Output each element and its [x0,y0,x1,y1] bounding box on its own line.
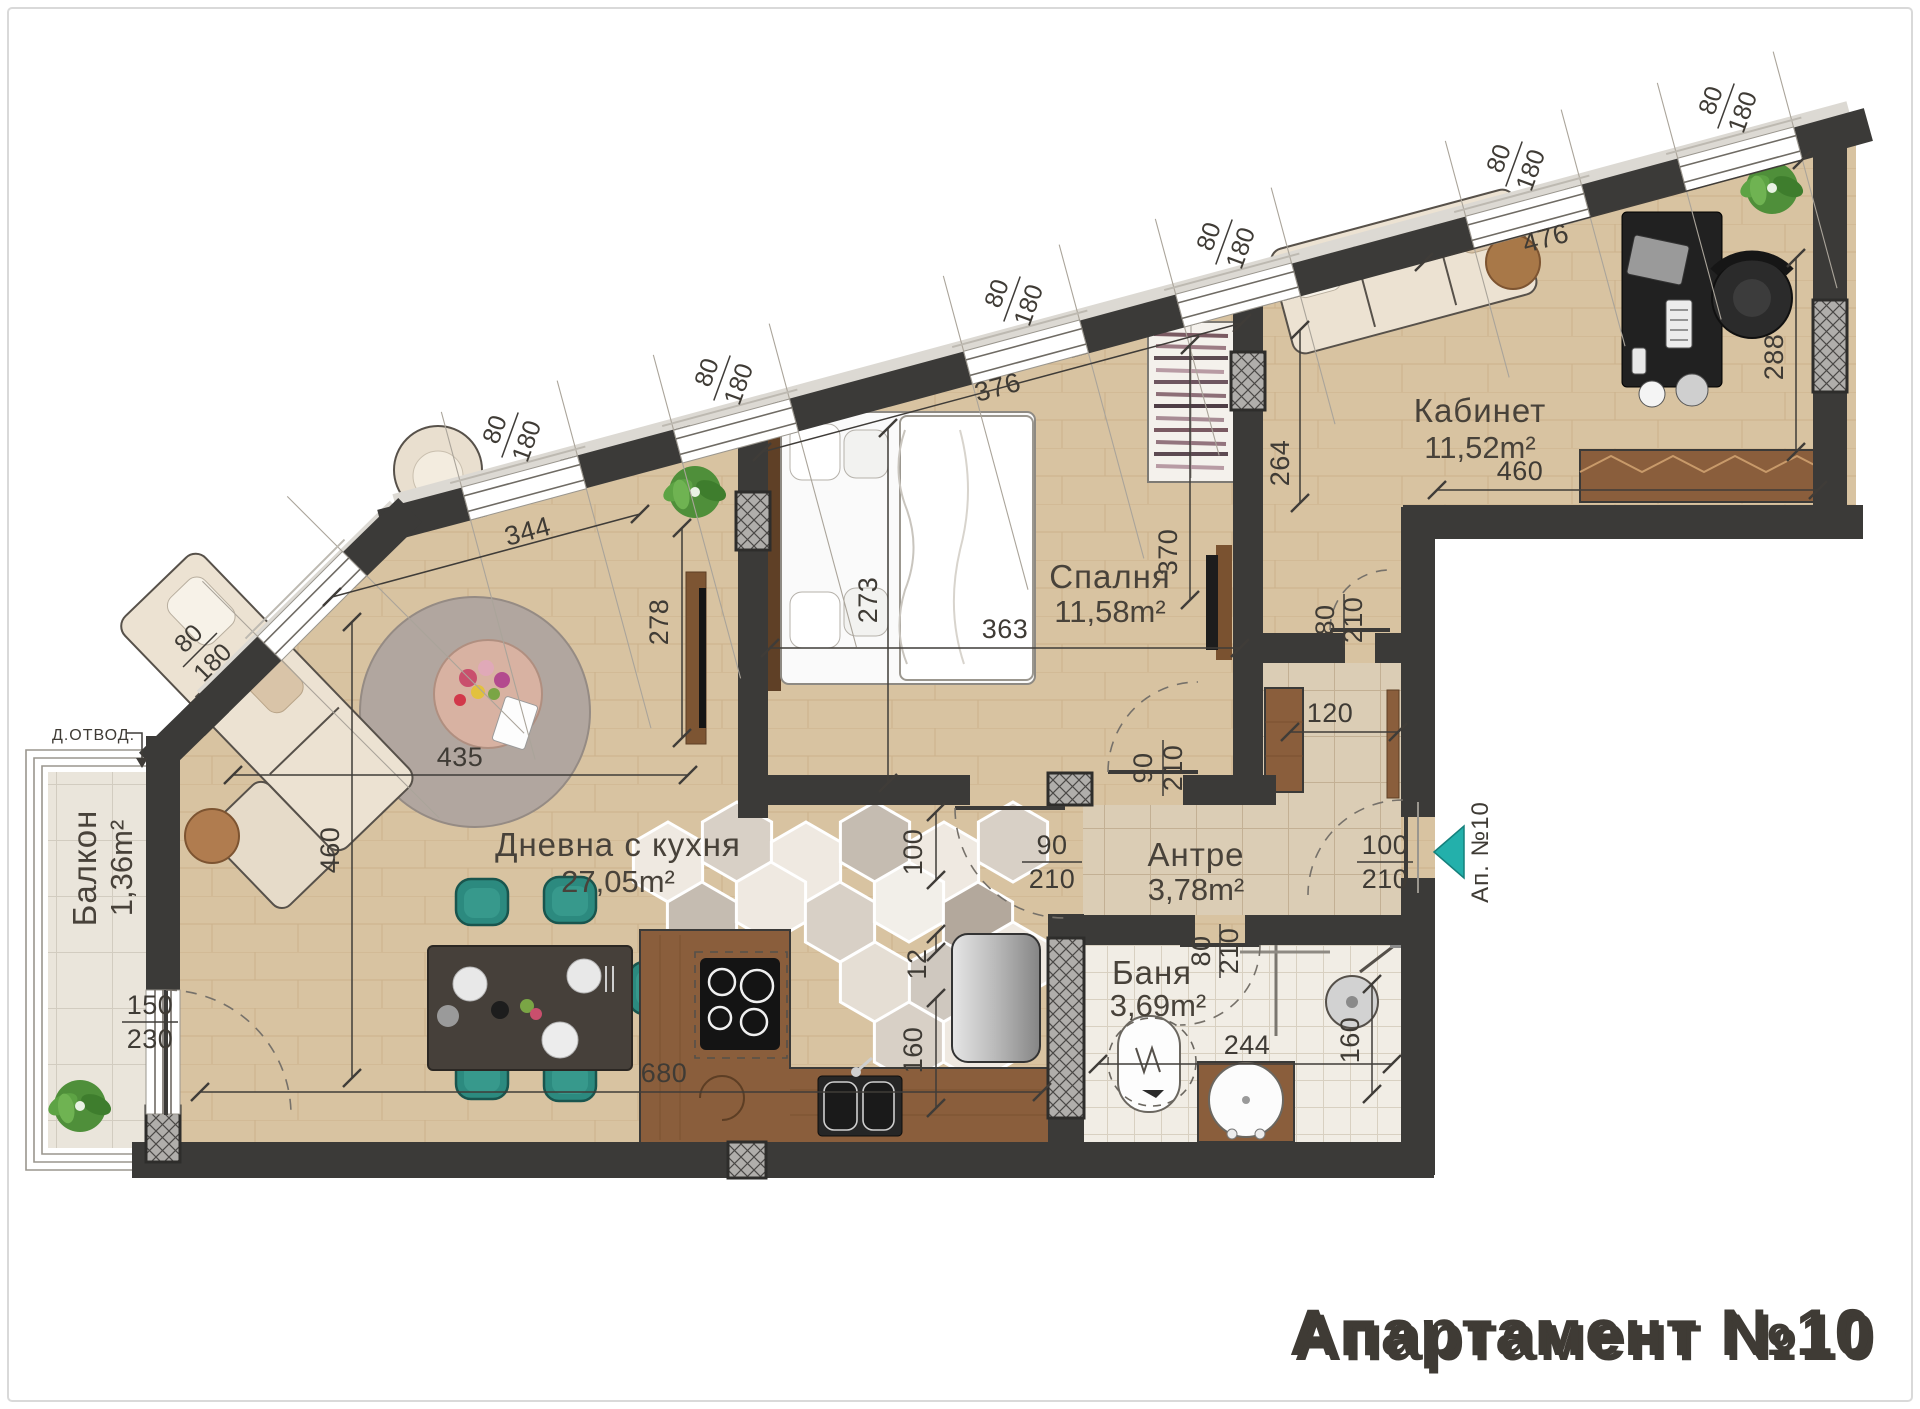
drain-annotation: Д.ОТВОД. [52,727,148,768]
floor-plan-drawing: 363 273 376 278 344 435 460 680 460 [0,0,1920,1409]
svg-text:90: 90 [1128,752,1158,783]
svg-text:288: 288 [1759,334,1789,381]
entrance-arrow-icon [1434,826,1464,878]
floor-plan-page: 363 273 376 278 344 435 460 680 460 [0,0,1920,1409]
label-office-area: 11,52m² [1424,430,1535,465]
wardrobe [1148,322,1234,482]
svg-text:160: 160 [898,1027,928,1074]
phone [1632,348,1646,374]
svg-text:160: 160 [1335,1017,1365,1064]
desk-lamp [1676,374,1708,406]
entrance-label: Ап. №10 [1467,801,1494,903]
svg-text:210: 210 [1338,597,1368,644]
cooktop [700,958,780,1050]
mug [1639,381,1665,407]
plan-title: Апартамент №10 Апартамент №10 [1289,1295,1878,1374]
washbasin [1198,1062,1294,1142]
svg-text:Д.ОТВОД.: Д.ОТВОД. [52,727,135,744]
svg-text:435: 435 [437,742,484,772]
label-balcony-name: Балкон [66,810,103,927]
svg-text:273: 273 [853,577,883,624]
label-balcony-area: 1,36m² [104,820,139,916]
label-hall-area: 3,78m² [1148,872,1244,907]
tv [699,588,706,728]
svg-text:680: 680 [641,1058,688,1088]
svg-text:150: 150 [127,990,174,1020]
hall-shelf [1387,690,1399,798]
svg-text:100: 100 [1362,830,1409,860]
svg-text:244: 244 [1224,1030,1271,1060]
label-office-name: Кабинет [1414,392,1547,429]
label-bedroom-area: 11,58m² [1054,594,1165,629]
pillow [844,430,888,478]
bedroom-tv [1206,555,1218,650]
label-living-name: Дневна с кухня [495,826,741,863]
keyboard [1666,300,1692,348]
pillow [790,592,840,648]
label-bedroom-name: Спалня [1049,558,1170,595]
label-bath-area: 3,69m² [1110,988,1206,1023]
svg-text:210: 210 [1158,745,1188,792]
svg-text:460: 460 [315,827,345,874]
svg-text:363: 363 [982,614,1029,644]
svg-text:12: 12 [902,948,932,979]
svg-text:90: 90 [1036,830,1067,860]
entrance-marker: Ап. №10 [1434,801,1494,903]
svg-text:100: 100 [898,829,928,876]
label-bath-name: Баня [1112,954,1192,991]
svg-text:278: 278 [644,599,674,646]
bedroom-tv-panel [1216,545,1232,660]
svg-text:210: 210 [1029,864,1076,894]
office-chair [1712,255,1792,338]
svg-text:210: 210 [1214,928,1244,975]
svg-text:120: 120 [1307,698,1354,728]
dim-entrance-door: 100 210 [1357,830,1413,894]
svg-text:230: 230 [127,1024,174,1054]
svg-text:264: 264 [1265,440,1295,487]
dim-balcony-door: 150 230 [122,990,178,1054]
svg-text:210: 210 [1362,864,1409,894]
plan-title-text: Апартамент №10 [1289,1295,1873,1369]
svg-text:80: 80 [1310,604,1340,635]
fridge [952,934,1040,1062]
side-table [185,809,239,863]
label-hall-name: Антре [1147,836,1244,873]
label-living-area: 27,05m² [561,864,675,899]
